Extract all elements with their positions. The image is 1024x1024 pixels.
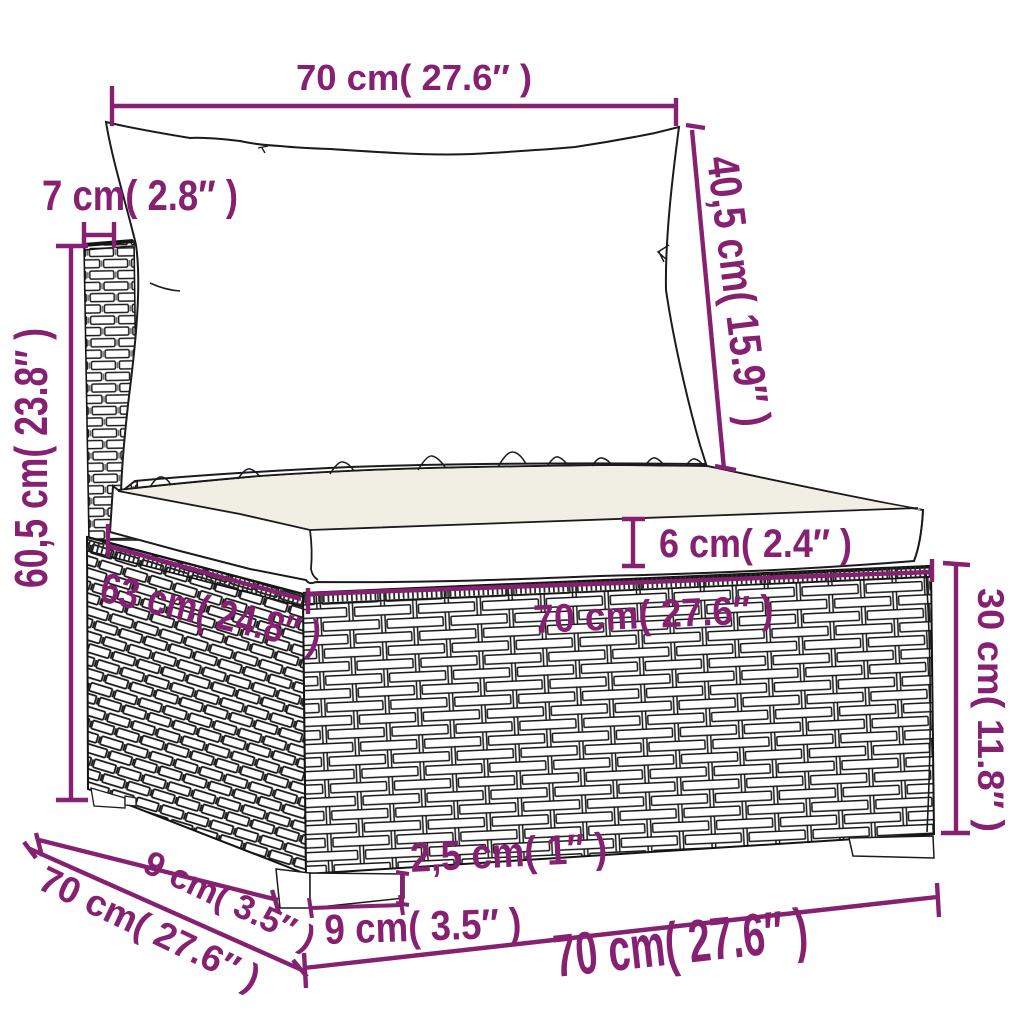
- svg-text:6 cm( 2.4″ ): 6 cm( 2.4″ ): [659, 522, 852, 566]
- svg-text:60,5 cm( 23.8″ ): 60,5 cm( 23.8″ ): [5, 328, 57, 588]
- svg-text:7 cm( 2.8″ ): 7 cm( 2.8″ ): [42, 172, 238, 220]
- svg-text:70 cm( 27.6″ ): 70 cm( 27.6″ ): [296, 57, 532, 98]
- svg-text:30 cm( 11.8″ ): 30 cm( 11.8″ ): [970, 588, 1011, 832]
